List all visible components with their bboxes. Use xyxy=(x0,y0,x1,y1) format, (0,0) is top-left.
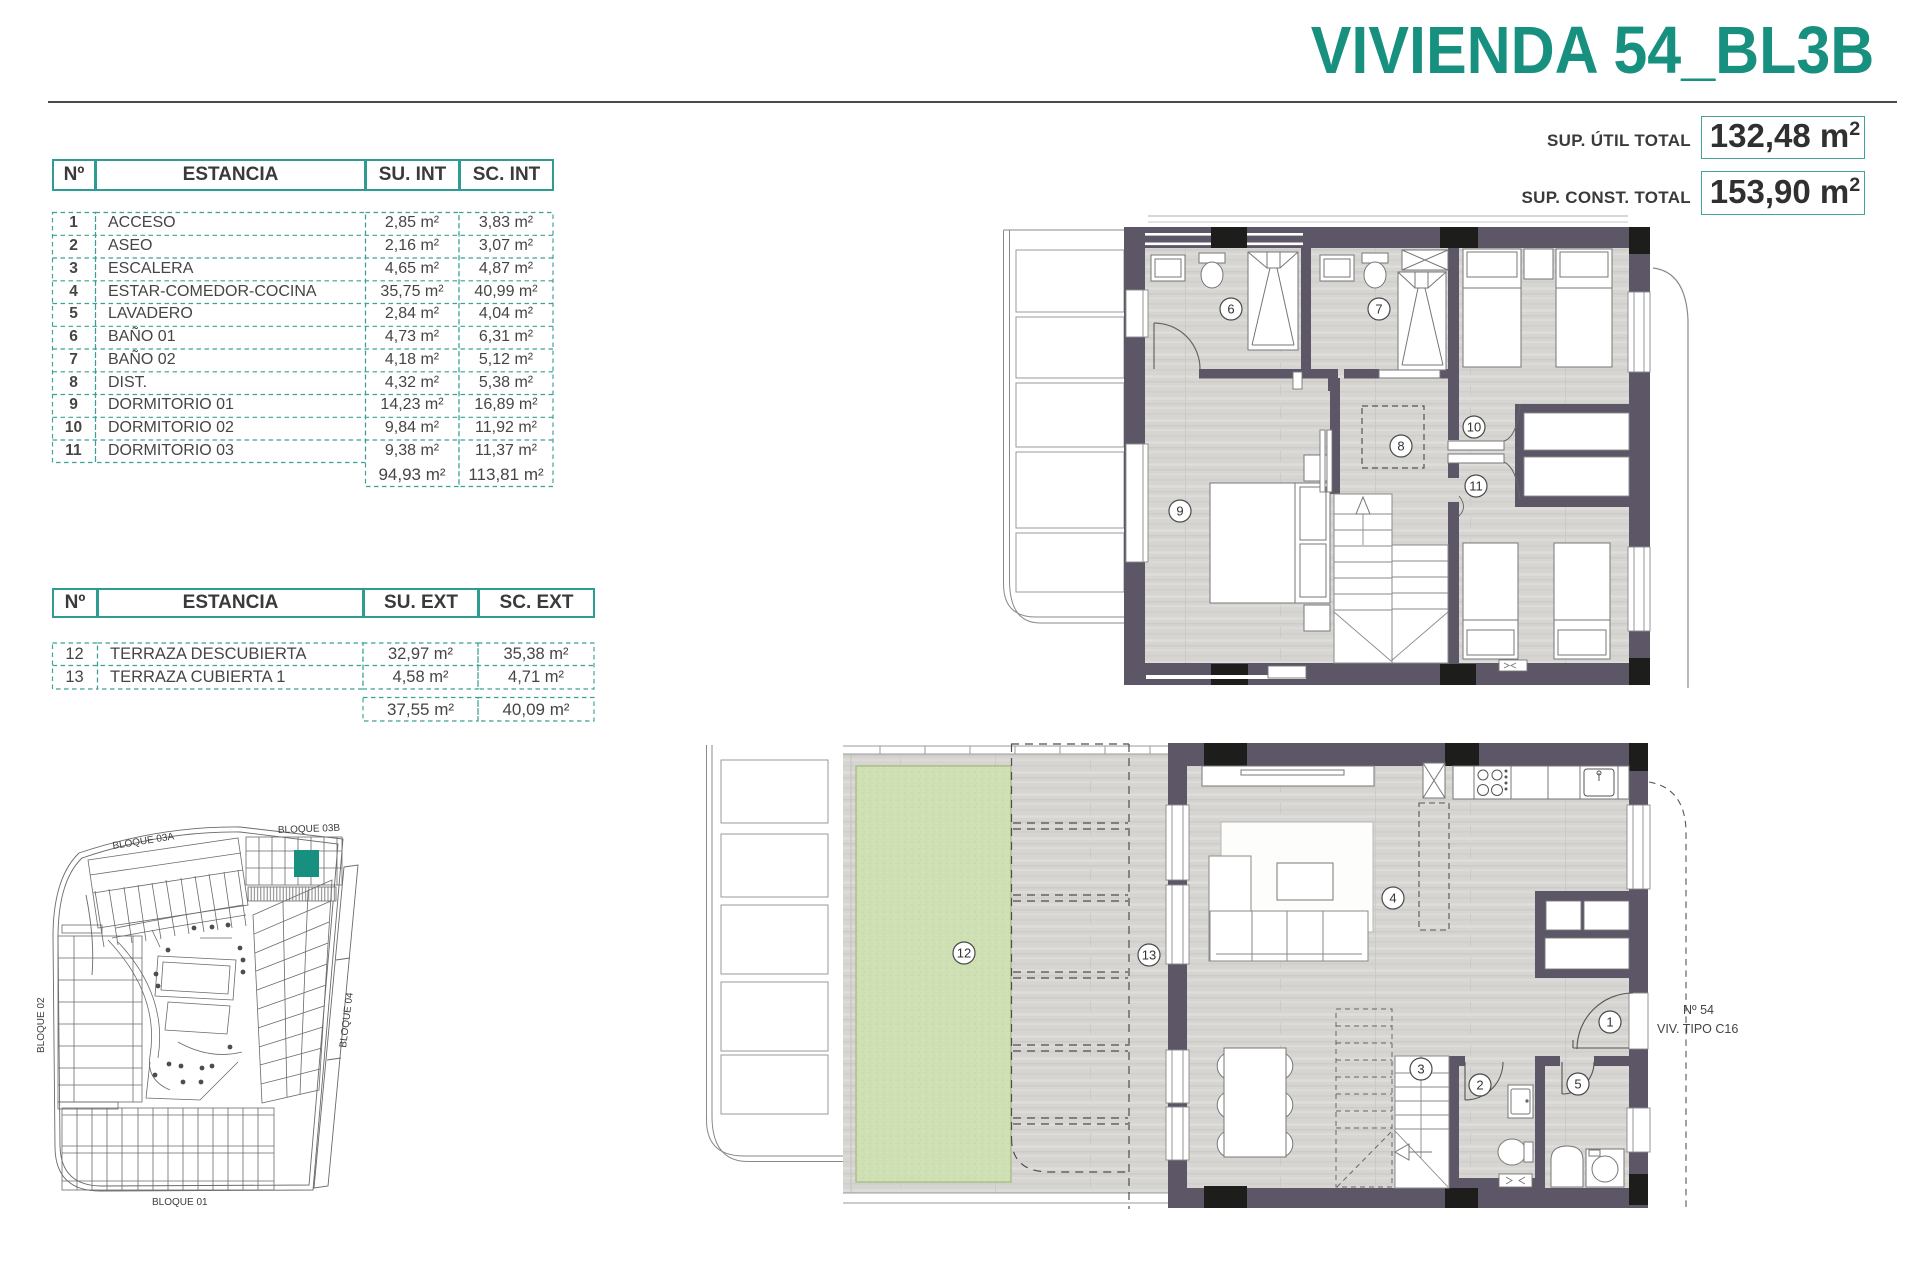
svg-text:13: 13 xyxy=(1142,948,1156,963)
svg-text:BLOQUE 02: BLOQUE 02 xyxy=(36,997,47,1053)
svg-text:BLOQUE 01: BLOQUE 01 xyxy=(152,1197,208,1208)
svg-text:10: 10 xyxy=(1467,420,1481,435)
svg-text:9: 9 xyxy=(1176,504,1183,519)
svg-text:VIV. TIPO C16: VIV. TIPO C16 xyxy=(1657,1022,1738,1036)
svg-text:6: 6 xyxy=(1227,302,1234,317)
svg-text:3: 3 xyxy=(1417,1062,1424,1077)
svg-text:2: 2 xyxy=(1476,1078,1483,1093)
svg-text:1: 1 xyxy=(1606,1015,1613,1030)
svg-text:BLOQUE 03B: BLOQUE 03B xyxy=(278,823,341,836)
svg-text:11: 11 xyxy=(1469,479,1483,494)
svg-text:4: 4 xyxy=(1389,891,1396,906)
svg-text:Nº 54: Nº 54 xyxy=(1683,1003,1714,1017)
svg-text:BLOQUE 04: BLOQUE 04 xyxy=(338,991,356,1048)
svg-text:5: 5 xyxy=(1574,1077,1581,1092)
svg-text:7: 7 xyxy=(1375,302,1382,317)
svg-text:12: 12 xyxy=(957,946,971,961)
svg-text:8: 8 xyxy=(1397,439,1404,454)
